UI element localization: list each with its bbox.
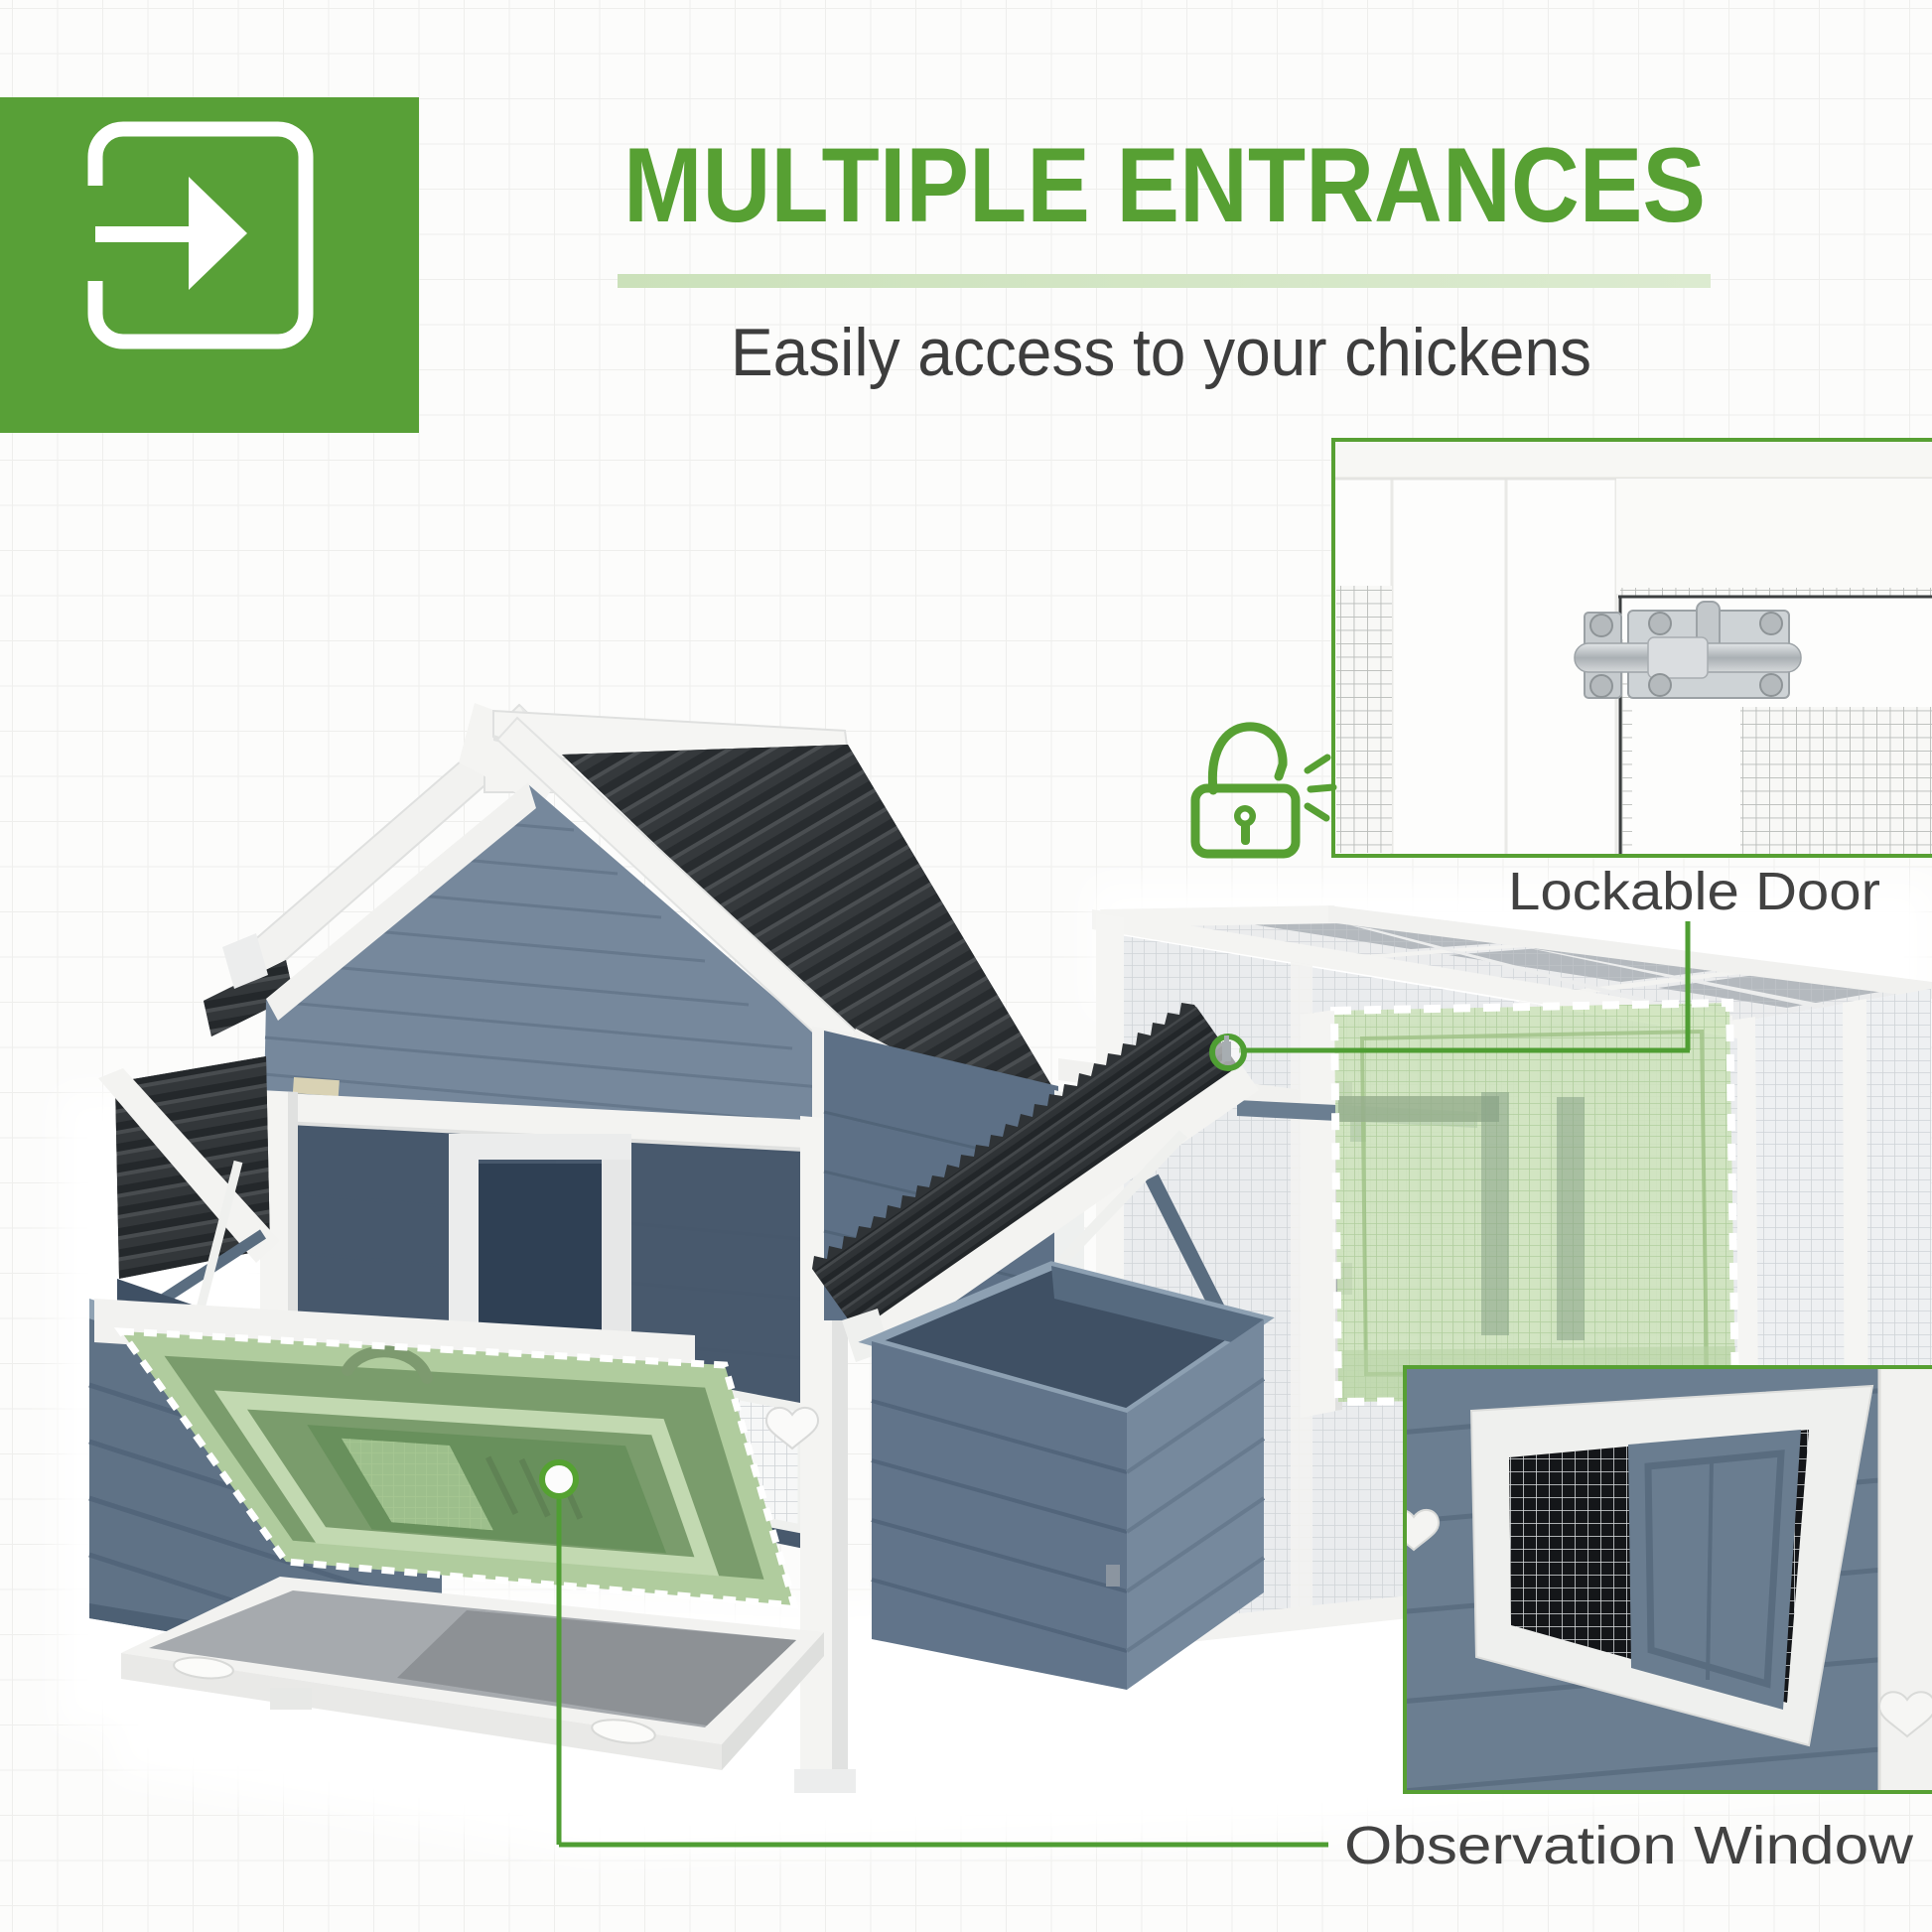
svg-text:Observation Window: Observation Window xyxy=(1344,1816,1914,1875)
svg-text:Easily access to your chickens: Easily access to your chickens xyxy=(731,315,1591,390)
svg-text:Lockable Door: Lockable Door xyxy=(1508,862,1880,921)
svg-text:MULTIPLE ENTRANCES: MULTIPLE ENTRANCES xyxy=(623,125,1706,244)
